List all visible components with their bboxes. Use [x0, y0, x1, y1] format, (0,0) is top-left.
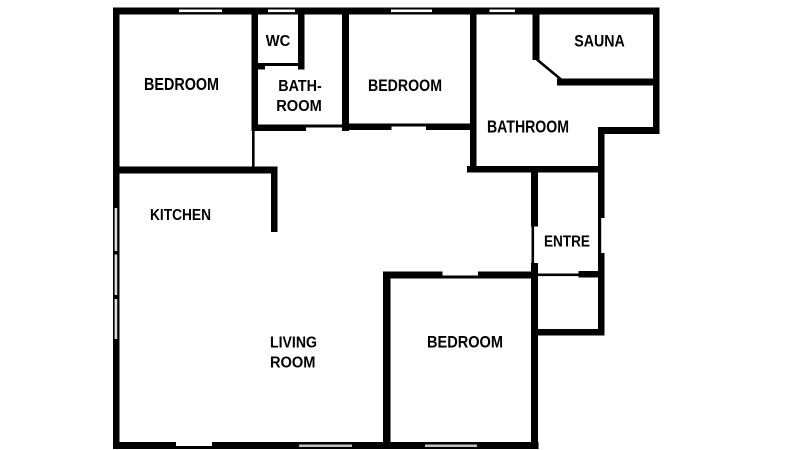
svg-text:ENTRE: ENTRE	[544, 234, 590, 251]
svg-text:BATHROOM: BATHROOM	[487, 117, 569, 137]
svg-text:LIVING: LIVING	[270, 335, 317, 352]
svg-text:BEDROOM: BEDROOM	[368, 76, 442, 95]
svg-text:BEDROOM: BEDROOM	[144, 74, 219, 94]
svg-text:BEDROOM: BEDROOM	[427, 333, 503, 352]
svg-text:WC: WC	[266, 33, 291, 50]
svg-text:SAUNA: SAUNA	[574, 33, 625, 51]
svg-text:ROOM: ROOM	[276, 98, 322, 115]
svg-text:KITCHEN: KITCHEN	[150, 207, 211, 224]
svg-text:ROOM: ROOM	[270, 355, 316, 372]
svg-text:BATH-: BATH-	[278, 78, 322, 95]
